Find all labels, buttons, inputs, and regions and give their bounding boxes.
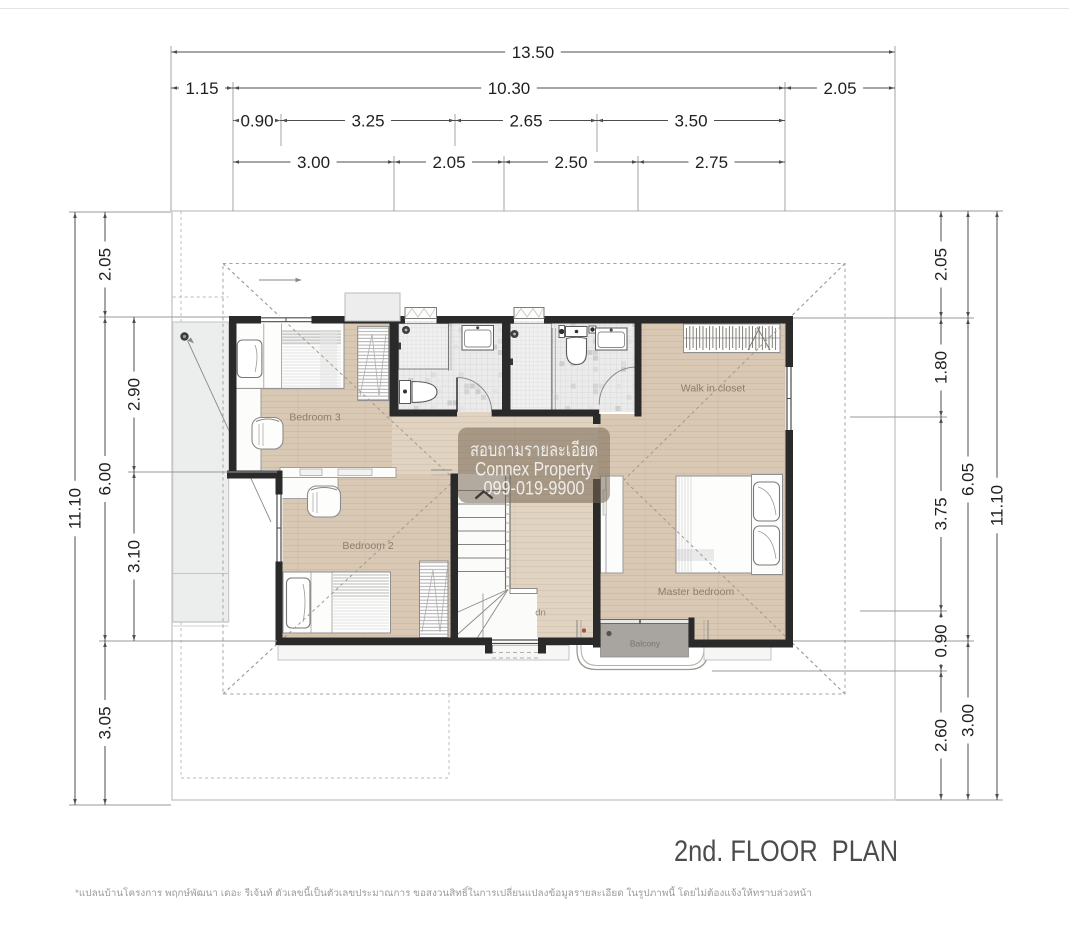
svg-text:3.25: 3.25	[351, 111, 384, 130]
svg-text:11.10: 11.10	[65, 488, 84, 529]
svg-text:2.90: 2.90	[124, 378, 143, 411]
svg-text:สอบถามรายละเอียด: สอบถามรายละเอียด	[470, 439, 598, 461]
svg-text:3.50: 3.50	[674, 111, 707, 130]
svg-text:2.05: 2.05	[432, 153, 465, 172]
svg-text:Bedroom 3: Bedroom 3	[289, 412, 341, 424]
svg-text:3.00: 3.00	[958, 704, 977, 737]
svg-text:1.80: 1.80	[931, 351, 950, 384]
svg-text:Master bedroom: Master bedroom	[658, 586, 735, 598]
svg-text:*แปลนบ้านโครงการ พฤกษ์พัฒนา เด: *แปลนบ้านโครงการ พฤกษ์พัฒนา เดอะ รีเจ้นท…	[75, 885, 812, 899]
svg-text:13.50: 13.50	[512, 43, 555, 62]
svg-text:2.75: 2.75	[695, 153, 728, 172]
svg-text:2.60: 2.60	[931, 719, 950, 752]
svg-text:3.00: 3.00	[297, 153, 330, 172]
svg-text:2.05: 2.05	[931, 248, 950, 281]
svg-text:dn: dn	[535, 608, 546, 619]
svg-text:Walk in closet: Walk in closet	[681, 383, 745, 395]
svg-text:6.05: 6.05	[958, 463, 977, 496]
svg-text:2.05: 2.05	[95, 248, 114, 281]
svg-text:3.05: 3.05	[95, 706, 114, 739]
svg-text:2.65: 2.65	[509, 111, 542, 130]
svg-text:11.10: 11.10	[987, 485, 1006, 526]
svg-text:0.90: 0.90	[240, 111, 273, 130]
svg-text:2.50: 2.50	[554, 153, 587, 172]
svg-text:10.30: 10.30	[488, 79, 531, 98]
svg-text:Connex Property: Connex Property	[475, 460, 593, 481]
svg-text:2.05: 2.05	[823, 79, 856, 98]
svg-text:Bedroom 2: Bedroom 2	[342, 540, 394, 552]
svg-text:6.00: 6.00	[95, 462, 114, 495]
svg-text:2nd. FLOOR PLAN: 2nd. FLOOR PLAN	[674, 835, 898, 868]
svg-text:3.10: 3.10	[124, 540, 143, 573]
svg-text:0.90: 0.90	[931, 624, 950, 657]
svg-text:3.75: 3.75	[931, 497, 950, 530]
svg-text:1.15: 1.15	[185, 79, 218, 98]
svg-text:Balcony: Balcony	[630, 639, 661, 649]
svg-text:099-019-9900: 099-019-9900	[484, 479, 585, 500]
